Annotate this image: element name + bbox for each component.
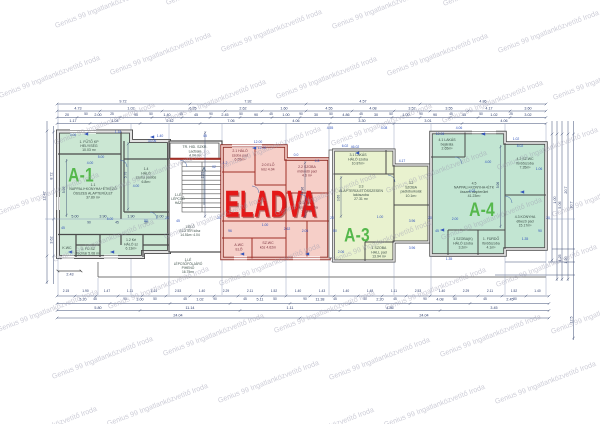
svg-text:12.06: 12.06 [436, 132, 445, 136]
svg-text:5.00: 5.00 [107, 217, 114, 221]
svg-text:4.17: 4.17 [399, 159, 406, 163]
svg-text:1.00: 1.00 [377, 215, 384, 219]
svg-text:20: 20 [165, 216, 169, 220]
svg-text:4.08: 4.08 [369, 107, 376, 111]
svg-text:4.57: 4.57 [359, 100, 366, 104]
svg-text:4.00: 4.00 [87, 161, 94, 165]
svg-text:33.06: 33.06 [148, 139, 157, 143]
svg-text:1.35: 1.35 [522, 237, 529, 241]
svg-text:27.31 m²: 27.31 m² [354, 197, 369, 201]
svg-text:1.00: 1.00 [262, 223, 269, 227]
svg-text:1.40: 1.40 [157, 134, 164, 138]
svg-text:4.06: 4.06 [456, 126, 463, 130]
svg-text:2.62: 2.62 [239, 107, 246, 111]
svg-text:15.17m²: 15.17m² [519, 224, 533, 228]
svg-text:20: 20 [546, 216, 550, 220]
svg-text:3.96: 3.96 [409, 246, 416, 250]
svg-text:45: 45 [269, 112, 273, 116]
svg-text:90: 90 [213, 297, 217, 301]
svg-text:3.55: 3.55 [445, 107, 452, 111]
svg-text:6.02: 6.02 [342, 144, 349, 148]
svg-text:2.53: 2.53 [175, 289, 182, 293]
svg-text:1.00: 1.00 [282, 113, 289, 117]
svg-text:2.20: 2.20 [376, 298, 383, 302]
svg-text:45: 45 [435, 229, 439, 233]
svg-text:90: 90 [433, 113, 437, 117]
svg-text:13.94 m²: 13.94 m² [372, 255, 387, 259]
svg-text:4.06: 4.06 [500, 119, 507, 123]
svg-text:10.1m²: 10.1m² [406, 194, 418, 198]
svg-text:1. FÜRDŐ: 1. FÜRDŐ [483, 236, 500, 241]
svg-text:4.8: 4.8 [315, 159, 320, 163]
svg-text:90: 90 [513, 297, 517, 301]
svg-text:25: 25 [509, 112, 513, 116]
svg-text:90: 90 [254, 113, 258, 117]
svg-text:5.00: 5.00 [98, 155, 105, 159]
svg-text:50: 50 [453, 297, 457, 301]
svg-text:1.40: 1.40 [534, 289, 541, 293]
svg-text:HÁLÓ szoba: HÁLÓ szoba [348, 156, 368, 161]
svg-text:45: 45 [176, 219, 180, 223]
svg-text:45: 45 [243, 297, 247, 301]
svg-text:11.14: 11.14 [186, 306, 195, 310]
svg-text:20: 20 [65, 113, 69, 117]
svg-text:4.02: 4.02 [469, 189, 476, 193]
svg-text:45: 45 [333, 297, 337, 301]
svg-text:1.02: 1.02 [196, 298, 203, 302]
svg-text:24.04: 24.04 [419, 314, 428, 318]
svg-text:4.6 m²: 4.6 m² [302, 174, 313, 178]
svg-text:3.45: 3.45 [490, 306, 497, 310]
svg-text:3.30: 3.30 [358, 119, 365, 123]
svg-text:1.40: 1.40 [295, 289, 302, 293]
svg-text:köz 4.62m: köz 4.62m [260, 245, 276, 249]
svg-text:7.06: 7.06 [227, 119, 234, 123]
svg-text:02: 02 [212, 165, 216, 169]
svg-text:2.45: 2.45 [221, 113, 228, 117]
svg-text:3.00: 3.00 [156, 215, 163, 219]
svg-text:90: 90 [303, 297, 307, 301]
svg-text:10.87m²: 10.87m² [352, 162, 366, 166]
svg-text:2.11: 2.11 [247, 289, 253, 293]
svg-text:45: 45 [61, 226, 65, 230]
svg-text:6.13m²: 6.13m² [126, 247, 138, 251]
svg-text:90: 90 [538, 229, 542, 233]
svg-text:2.00: 2.00 [452, 217, 459, 221]
svg-text:2.20: 2.20 [201, 172, 205, 179]
svg-text:5.06: 5.06 [496, 182, 500, 189]
svg-text:45: 45 [203, 134, 207, 138]
svg-text:7.92: 7.92 [244, 100, 251, 104]
svg-text:45: 45 [483, 297, 487, 301]
svg-text:1.60: 1.60 [280, 107, 287, 111]
svg-text:50: 50 [273, 297, 277, 301]
svg-text:1.40: 1.40 [199, 289, 206, 293]
svg-text:ELŐ: ELŐ [235, 246, 242, 251]
svg-text:9.72: 9.72 [119, 100, 126, 104]
svg-text:50: 50 [329, 112, 333, 116]
svg-text:1.47: 1.47 [104, 289, 111, 293]
svg-text:1.90: 1.90 [127, 215, 134, 219]
svg-text:HÁLÓ sz: HÁLÓ sz [124, 241, 138, 246]
svg-text:1.35: 1.35 [446, 257, 453, 261]
svg-text:1.18: 1.18 [115, 130, 122, 134]
svg-text:11.38: 11.38 [316, 298, 325, 302]
svg-text:4.55: 4.55 [327, 126, 334, 130]
svg-text:HÁLÓ szoba: HÁLÓ szoba [453, 240, 473, 245]
svg-text:20.7: 20.7 [564, 186, 568, 193]
svg-text:HÁZ: HÁZ [175, 201, 182, 205]
svg-text:2.0 ELŐ: 2.0 ELŐ [262, 162, 275, 167]
svg-text:1.43: 1.43 [319, 289, 326, 293]
svg-text:3.96: 3.96 [409, 219, 416, 223]
svg-text:12.00: 12.00 [254, 140, 263, 144]
svg-text:4.55: 4.55 [325, 107, 332, 111]
svg-text:45: 45 [183, 297, 187, 301]
svg-text:1.00: 1.00 [553, 196, 557, 203]
svg-text:5.00: 5.00 [71, 215, 78, 219]
svg-text:3.60: 3.60 [337, 195, 341, 202]
svg-text:3.02: 3.02 [524, 113, 531, 117]
svg-text:30: 30 [314, 113, 318, 117]
svg-text:8.72: 8.72 [49, 172, 53, 179]
svg-text:46.02: 46.02 [351, 145, 360, 149]
svg-text:2.00: 2.00 [94, 113, 101, 117]
svg-text:4.96: 4.96 [301, 187, 305, 194]
svg-text:4.00: 4.00 [485, 160, 492, 164]
svg-text:8.02: 8.02 [517, 144, 524, 148]
svg-text:7.35m²: 7.35m² [520, 166, 532, 170]
svg-text:45: 45 [194, 113, 198, 117]
svg-text:20: 20 [330, 216, 334, 220]
svg-text:2.62: 2.62 [284, 227, 291, 231]
svg-text:1.11: 1.11 [287, 306, 294, 310]
svg-text:2.06: 2.06 [302, 229, 309, 233]
svg-text:50: 50 [479, 112, 483, 116]
svg-text:1.17: 1.17 [69, 119, 76, 123]
svg-text:10.03 m²: 10.03 m² [82, 148, 97, 152]
svg-text:1.02: 1.02 [513, 137, 520, 141]
svg-text:1.40: 1.40 [343, 289, 350, 293]
svg-text:2.43: 2.43 [66, 273, 73, 277]
svg-text:1.52: 1.52 [511, 289, 518, 293]
svg-text:3.90: 3.90 [99, 215, 106, 219]
svg-text:4.08: 4.08 [436, 298, 443, 302]
svg-text:50: 50 [149, 112, 153, 116]
svg-text:4.86: 4.86 [342, 113, 349, 117]
svg-text:5.11: 5.11 [257, 298, 264, 302]
svg-text:24.04: 24.04 [173, 314, 182, 318]
svg-text:90: 90 [87, 220, 91, 224]
svg-text:3.01: 3.01 [424, 119, 431, 123]
svg-text:2.15: 2.15 [63, 289, 70, 293]
svg-text:3.60: 3.60 [524, 107, 531, 111]
svg-text:4.06: 4.06 [292, 119, 299, 123]
svg-text:2.65m²: 2.65m² [442, 147, 454, 151]
svg-text:45: 45 [359, 112, 363, 116]
svg-text:50: 50 [239, 112, 243, 116]
svg-text:30: 30 [374, 113, 378, 117]
svg-text:4.1m²: 4.1m² [487, 246, 497, 250]
svg-text:90: 90 [209, 112, 213, 116]
svg-text:3.62: 3.62 [49, 236, 53, 243]
svg-text:1.02: 1.02 [490, 113, 497, 117]
svg-text:1.06: 1.06 [536, 167, 543, 171]
svg-text:2.11: 2.11 [487, 289, 493, 293]
svg-text:3.2m²: 3.2m² [459, 246, 469, 250]
svg-text:2.29: 2.29 [223, 289, 230, 293]
svg-text:50: 50 [153, 297, 157, 301]
svg-text:50: 50 [333, 229, 337, 233]
svg-text:45: 45 [115, 220, 119, 224]
svg-text:90: 90 [423, 297, 427, 301]
svg-text:90: 90 [299, 112, 303, 116]
svg-text:0.0: 0.0 [294, 153, 299, 157]
svg-text:37.89 m²: 37.89 m² [86, 196, 101, 200]
svg-text:1.52: 1.52 [271, 289, 278, 293]
svg-text:köz 4.04: köz 4.04 [261, 167, 274, 171]
svg-text:50: 50 [84, 112, 88, 116]
svg-text:5.80: 5.80 [94, 306, 101, 310]
svg-text:4.73: 4.73 [74, 107, 81, 111]
svg-text:96: 96 [228, 229, 232, 233]
svg-text:45: 45 [93, 297, 97, 301]
svg-text:2.29: 2.29 [463, 289, 470, 293]
